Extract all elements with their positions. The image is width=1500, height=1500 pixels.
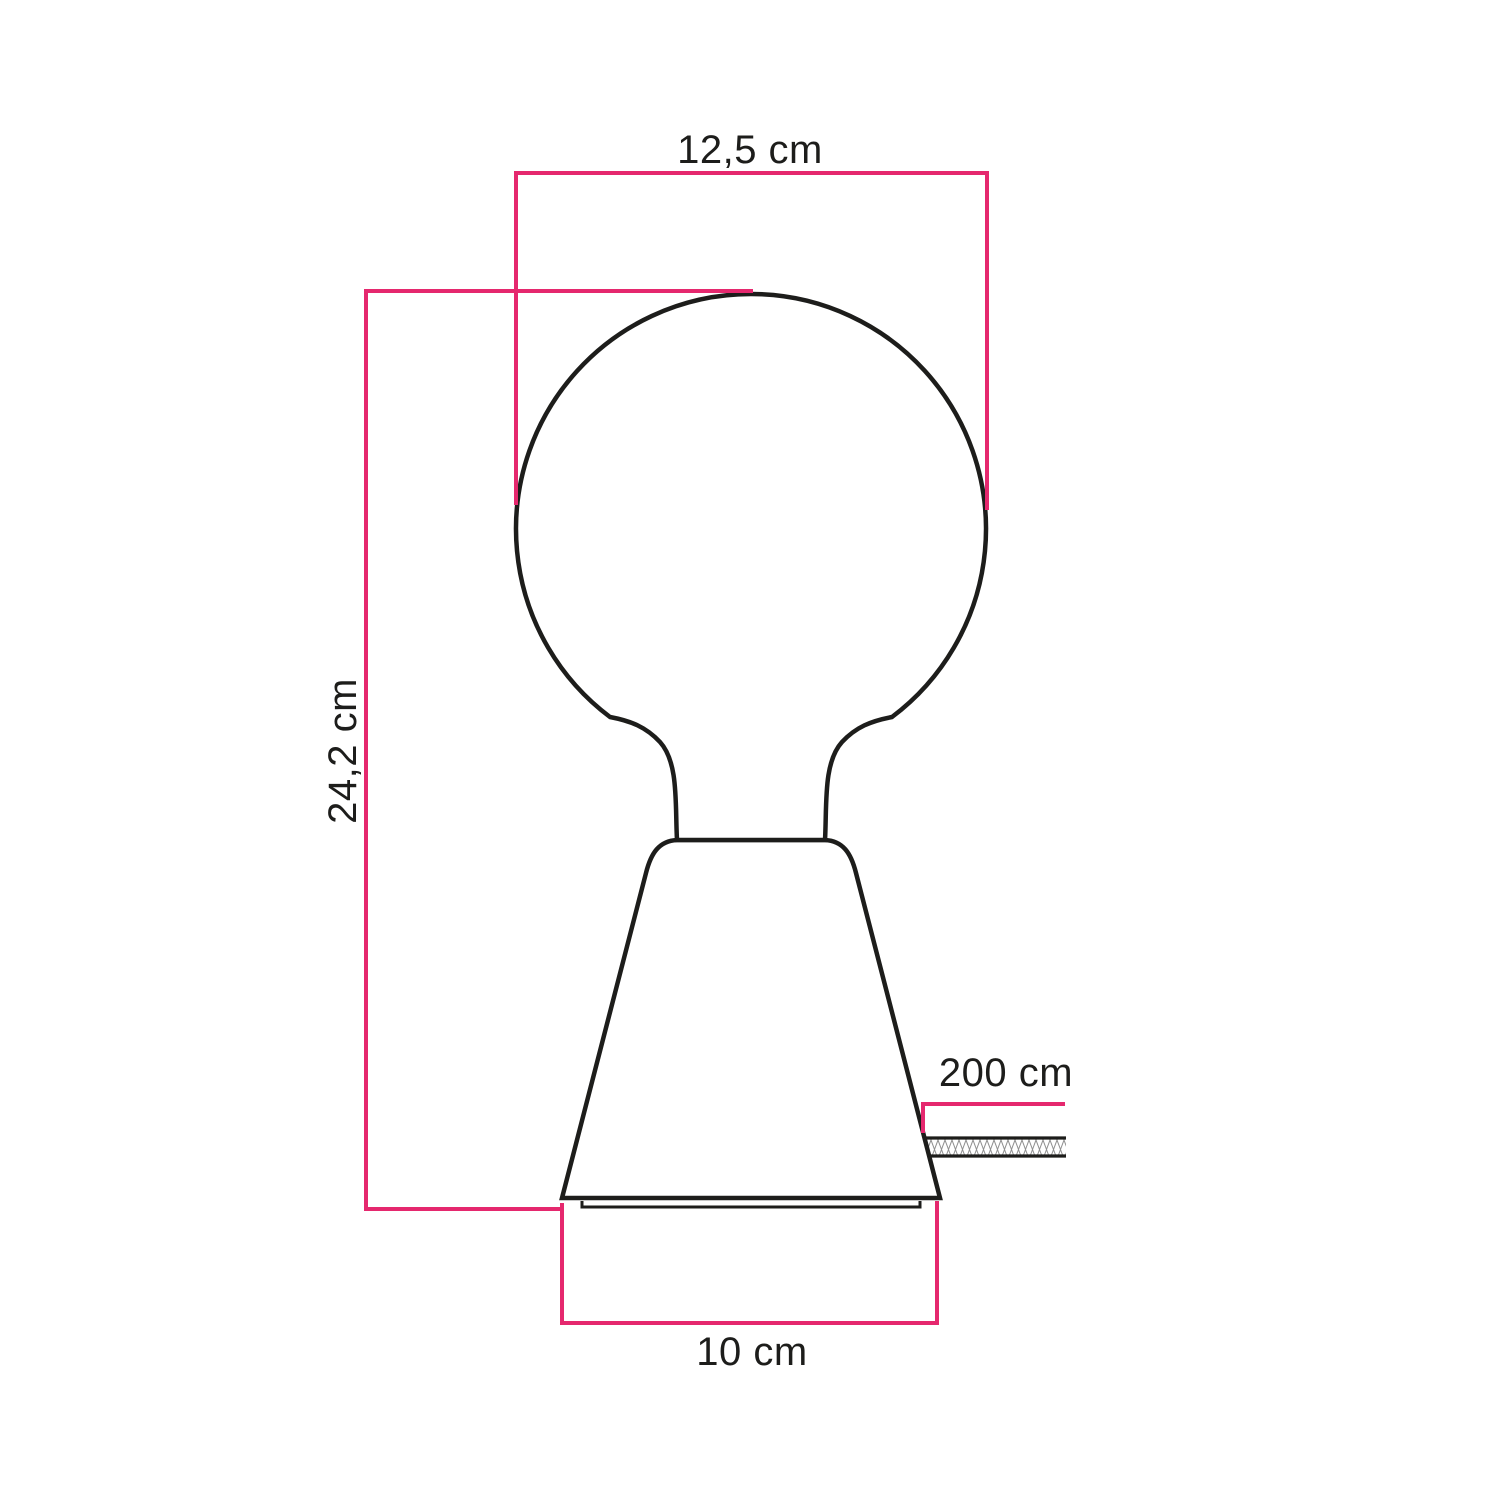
diagram-canvas: 12,5 cm 24,2 cm 200 cm 10 cm [0,0,1500,1500]
dimension-line-base-diameter [562,1201,937,1323]
lamp-dimension-diagram: 12,5 cm 24,2 cm 200 cm 10 cm [0,0,1500,1500]
dimension-label-cable-length: 200 cm [939,1051,1073,1095]
dimension-base-diameter: 10 cm [562,1201,937,1374]
bulb-outline [516,294,986,840]
dimension-line-cable-length [923,1104,1065,1133]
cable-hatch-fill [918,1139,1066,1155]
base-cone-outline [562,840,940,1198]
dimension-label-base-diameter: 10 cm [696,1330,807,1374]
power-cable [918,1138,1066,1156]
dimension-label-total-height: 24,2 cm [321,678,365,824]
globe-bulb [516,294,986,840]
base-foot-plate [582,1201,920,1207]
dimension-label-bulb-diameter: 12,5 cm [677,128,823,172]
dimension-cable-length: 200 cm [923,1051,1073,1133]
lamp-base [562,840,940,1207]
